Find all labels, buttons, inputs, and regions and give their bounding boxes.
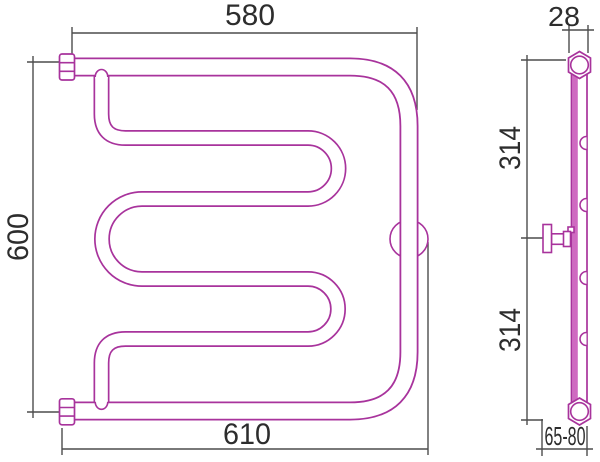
dim-wall-distance: 65-80 xyxy=(536,419,593,456)
serpentine-bottom-cap xyxy=(95,394,108,409)
nut-bore xyxy=(571,403,589,421)
dim-upper-span-value: 314 xyxy=(494,126,527,170)
pipe-serpentine-bore xyxy=(102,75,339,403)
pipe-frame-bore xyxy=(74,67,409,411)
pipe-frame xyxy=(74,67,409,411)
nut-body xyxy=(60,54,75,80)
joint-arc xyxy=(580,272,587,285)
joint-arc xyxy=(580,199,587,212)
towel-rail-drawing: 580 600 610 28 314 xyxy=(0,0,600,462)
joint-arc xyxy=(580,333,587,346)
nut-bore xyxy=(571,56,589,74)
technical-drawing-page: 580 600 610 28 314 xyxy=(0,0,600,462)
bracket-collar xyxy=(564,232,571,247)
dim-pipe-width-value: 28 xyxy=(548,1,580,32)
dim-top-width: 580 xyxy=(72,0,417,110)
hex-nut-side-top xyxy=(569,52,591,79)
serpentine-top-cap xyxy=(95,69,108,84)
hex-nut-bottom-left xyxy=(60,399,75,425)
dim-height: 600 xyxy=(2,56,60,418)
hex-nut-side-bottom xyxy=(569,398,591,425)
bracket-plate xyxy=(543,225,552,253)
dim-top-width-value: 580 xyxy=(225,0,275,32)
front-view xyxy=(60,54,429,425)
hex-nut-top-left xyxy=(60,54,75,80)
dim-pipe-width: 28 xyxy=(548,1,594,53)
dim-bottom-width-value: 610 xyxy=(223,418,271,451)
pipe-serpentine xyxy=(102,75,339,403)
side-view xyxy=(543,52,591,426)
nut-body xyxy=(60,399,75,425)
joint-arc xyxy=(580,137,587,150)
side-pipe-wall xyxy=(572,58,577,416)
dim-height-value: 600 xyxy=(2,213,35,261)
dim-lower-span-value: 314 xyxy=(494,308,527,352)
wall-bracket xyxy=(543,225,574,253)
